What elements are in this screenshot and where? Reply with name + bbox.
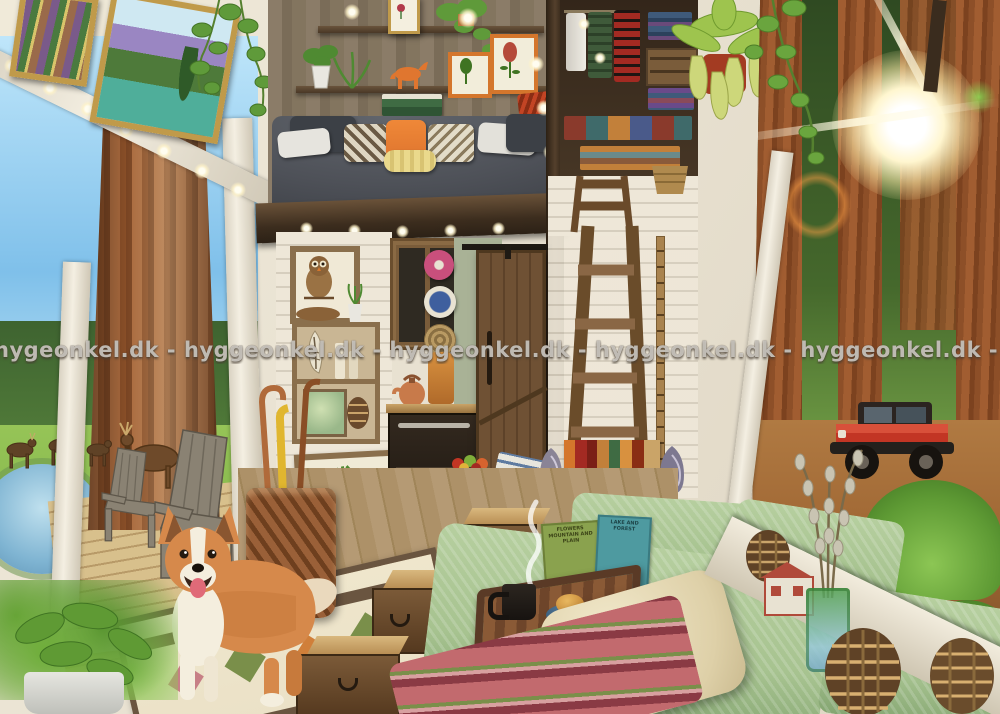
decorative-plate-blue: [424, 286, 456, 318]
cabinet-door: [396, 245, 428, 345]
horse-figurine: [388, 56, 430, 90]
floral-print-small: [388, 0, 420, 34]
pillow-yellow-knit: [384, 150, 436, 172]
wicker-basket-small: [648, 156, 692, 196]
closet-pendant-bulb: [594, 52, 606, 64]
hanging-shirt-green-plaid: [588, 12, 612, 78]
string-light: [230, 182, 246, 198]
loft-light: [444, 224, 457, 237]
pinecone-corner: [926, 636, 998, 714]
pussy-willow-branches: [790, 430, 870, 600]
kitchen-counter: [386, 404, 482, 413]
lake-book-title: LAKE AND FOREST: [599, 517, 650, 537]
botanical-print-orange-1: [448, 52, 492, 98]
drawer-pull: [390, 614, 410, 627]
decorative-plate-pink: [424, 250, 454, 280]
mug-handle: [488, 592, 509, 620]
string-light-post: [528, 56, 544, 72]
tiny-house-puzzle-artwork: FLOWERS MOUNTAIN AND PLAIN LAKE AND FORE…: [0, 0, 1000, 714]
wooden-bowl: [294, 306, 342, 322]
watermark-text: hygeonkel.dk - hyggeonkel.dk - hyggeonke…: [0, 338, 1000, 364]
string-light: [194, 163, 210, 179]
steam: [512, 500, 552, 590]
pillow-zigzag: [344, 124, 388, 162]
lens-flare-green: [962, 80, 996, 114]
forest-painting: [9, 0, 99, 87]
barn-door-hanger: [505, 245, 511, 259]
hanging-vine-right: [742, 0, 882, 186]
barn-door-brace: [478, 385, 547, 425]
closet-pendant-bulb: [578, 18, 590, 30]
loft-light: [492, 222, 505, 235]
bulb-above-shelf: [458, 8, 478, 28]
small-white-pot-plant: [338, 282, 372, 324]
pinecone-large: [820, 626, 906, 714]
bulb-above-shelf: [344, 4, 360, 20]
green-books-stack: [382, 94, 442, 116]
pillow-white-left: [277, 127, 331, 158]
house-window: [771, 586, 781, 596]
loft-light: [396, 225, 409, 238]
fern-plant-shelf: [330, 48, 374, 90]
oven-handle: [398, 423, 470, 428]
copper-kettle: [392, 368, 432, 408]
white-planter: [24, 672, 124, 714]
